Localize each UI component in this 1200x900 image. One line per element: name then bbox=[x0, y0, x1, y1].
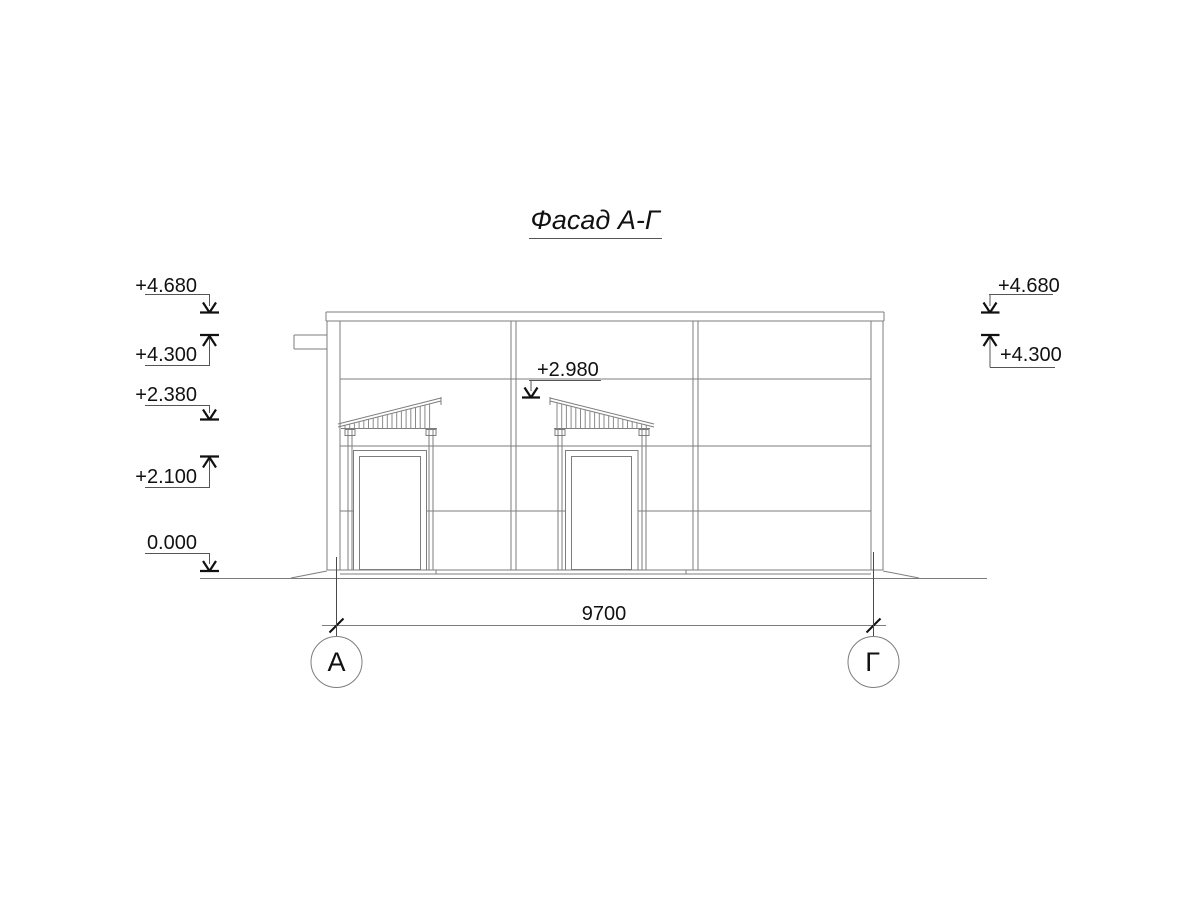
elevation-marks-right: +4.680 +4.300 bbox=[981, 275, 1062, 368]
facade-drawing-sheet: Фасад А-Г bbox=[0, 0, 1200, 900]
elevation-mark: +4.300 bbox=[135, 335, 219, 366]
canopy-right bbox=[550, 397, 654, 429]
building-facade bbox=[294, 312, 884, 570]
canopy-left-slant bbox=[338, 397, 441, 427]
elevation-mark: +4.680 bbox=[135, 275, 219, 313]
elevation-mark: +2.100 bbox=[135, 457, 219, 489]
wall-projection-box bbox=[294, 335, 327, 349]
door-left bbox=[345, 430, 436, 571]
elevation-label: +2.980 bbox=[537, 359, 599, 381]
door-left-leaf bbox=[360, 457, 421, 570]
elevation-label: +4.300 bbox=[135, 344, 197, 366]
elevation-mark-center: +2.980 bbox=[522, 359, 601, 398]
dimension-value: 9700 bbox=[582, 603, 627, 625]
parapet-coping bbox=[326, 312, 884, 321]
canopy-left bbox=[338, 397, 441, 429]
panel-joint-lines bbox=[340, 379, 871, 511]
canopy-right-slant bbox=[550, 397, 654, 427]
elevation-marks-left: +4.680 +4.300 +2.380 +2.100 0.000 bbox=[135, 275, 219, 571]
door-left-post-cap bbox=[426, 430, 436, 436]
plinth-lines bbox=[327, 570, 883, 574]
axis-a: А bbox=[311, 557, 362, 688]
door-left-post-cap bbox=[345, 430, 355, 436]
elevation-mark: +4.300 bbox=[981, 335, 1062, 368]
door-right-frame bbox=[566, 451, 639, 571]
elevation-label: +4.680 bbox=[998, 275, 1060, 297]
elevation-mark: +2.380 bbox=[135, 384, 219, 420]
door-right-leaf bbox=[572, 457, 632, 570]
elevation-label: +2.100 bbox=[135, 466, 197, 488]
axis-letter-g: Г bbox=[865, 647, 880, 677]
dimension-line: 9700 bbox=[322, 603, 886, 633]
door-right-post-cap bbox=[555, 430, 565, 436]
door-right bbox=[555, 430, 649, 571]
drawing-title-text: Фасад А-Г bbox=[530, 205, 661, 235]
elevation-mark: 0.000 bbox=[145, 532, 219, 571]
facade-drawing: Фасад А-Г bbox=[0, 0, 1200, 900]
ground bbox=[200, 570, 987, 579]
elevation-label: +2.380 bbox=[135, 384, 197, 406]
axis-letter-a: А bbox=[327, 647, 345, 677]
canopy-hatch-right bbox=[557, 403, 646, 429]
drawing-title: Фасад А-Г bbox=[529, 205, 662, 239]
door-left-frame bbox=[354, 451, 427, 571]
elevation-label: +4.680 bbox=[135, 275, 197, 297]
door-right-post-cap bbox=[639, 430, 649, 436]
elevation-label: +4.300 bbox=[1000, 344, 1062, 366]
elevation-mark: +4.680 bbox=[981, 275, 1060, 313]
elevation-label: 0.000 bbox=[147, 532, 197, 554]
